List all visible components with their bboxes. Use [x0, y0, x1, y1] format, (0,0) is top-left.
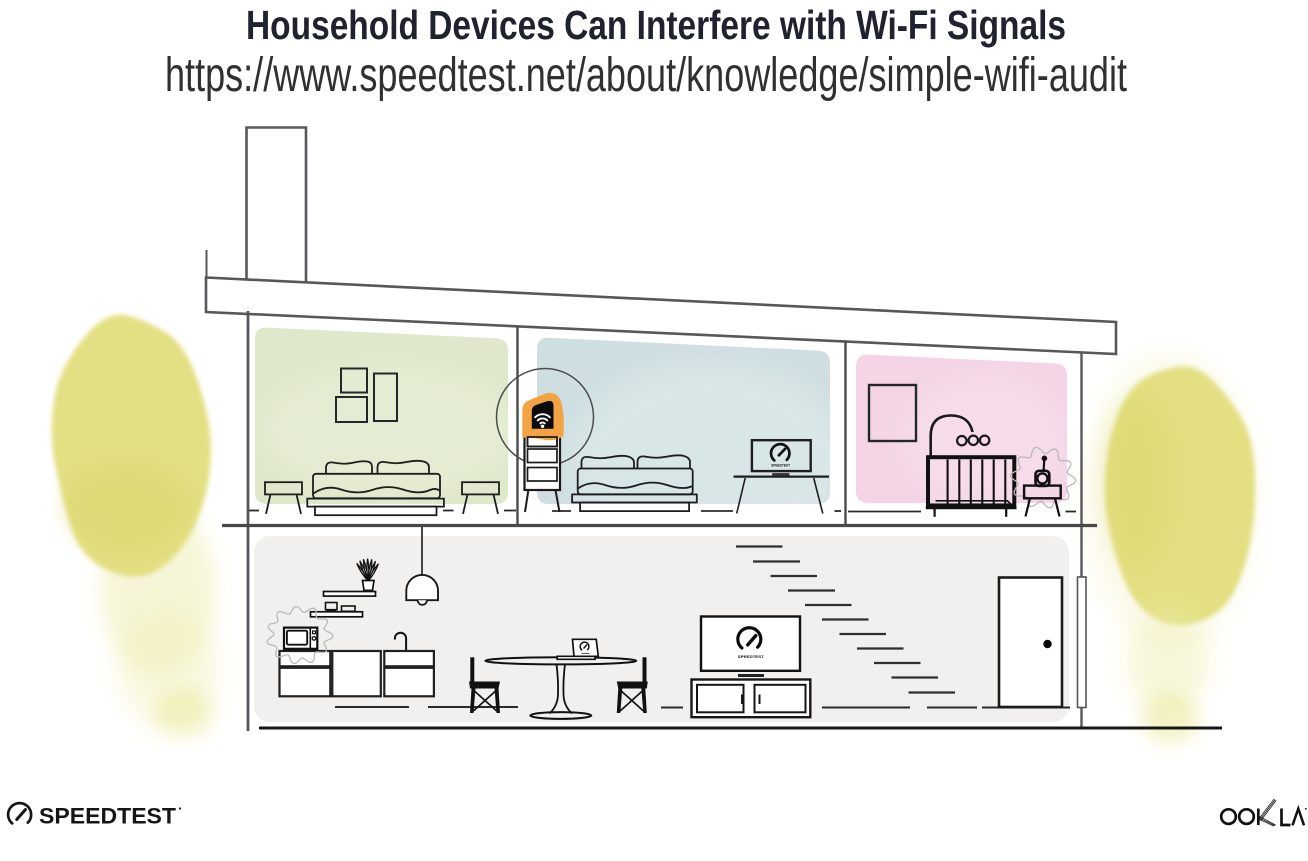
- svg-text:SPEEDTEST: SPEEDTEST: [771, 463, 790, 467]
- svg-text:https://www.speedtest.net/abou: https://www.speedtest.net/about/knowledg…: [165, 49, 1127, 102]
- svg-text:SPEEDTEST: SPEEDTEST: [39, 804, 176, 829]
- svg-text:SPEEDTEST: SPEEDTEST: [738, 654, 765, 659]
- svg-text:Household Devices Can Interfer: Household Devices Can Interfere with Wi-…: [246, 2, 1066, 48]
